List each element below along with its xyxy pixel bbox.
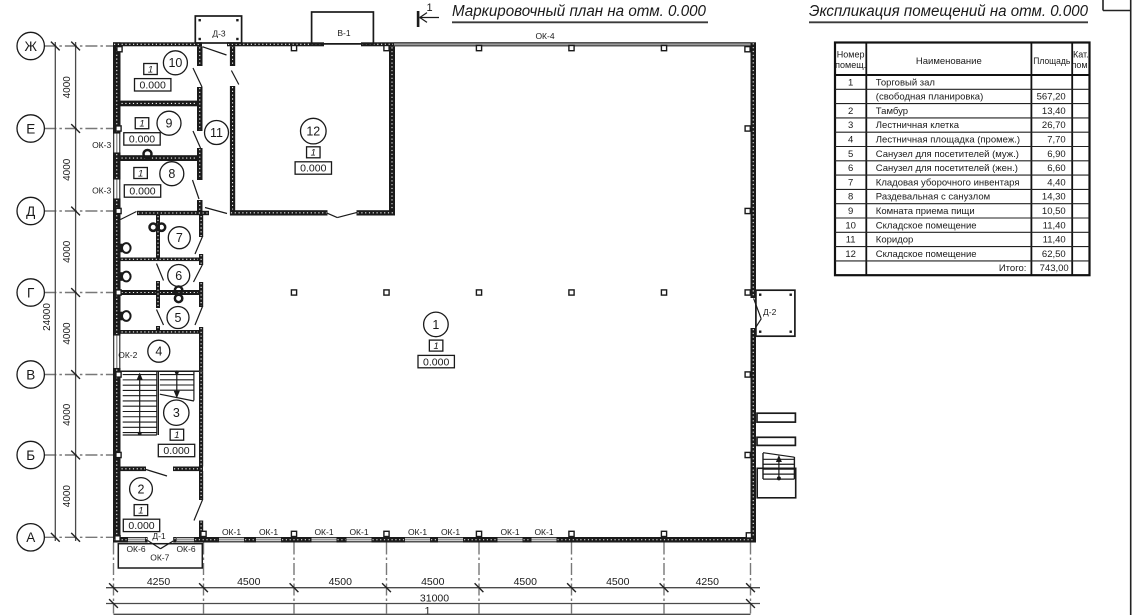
svg-text:1: 1 <box>426 2 432 14</box>
svg-text:10: 10 <box>168 56 182 70</box>
svg-text:В: В <box>26 367 35 382</box>
svg-text:14,30: 14,30 <box>1042 192 1066 203</box>
svg-text:Лестничная клетка: Лестничная клетка <box>876 120 960 131</box>
svg-text:0.000: 0.000 <box>140 80 166 92</box>
svg-text:1: 1 <box>424 606 430 615</box>
svg-text:12: 12 <box>306 125 320 139</box>
svg-text:А: А <box>26 530 35 545</box>
svg-text:4500: 4500 <box>237 576 261 588</box>
svg-text:ОК-2: ОК-2 <box>118 350 137 360</box>
svg-text:0.000: 0.000 <box>163 445 189 457</box>
svg-text:0.000: 0.000 <box>423 356 449 368</box>
svg-text:7: 7 <box>848 177 853 188</box>
svg-text:Торговый зал: Торговый зал <box>876 77 935 88</box>
svg-text:0.000: 0.000 <box>300 163 326 175</box>
svg-text:743,00: 743,00 <box>1040 263 1069 274</box>
svg-text:1: 1 <box>148 64 153 75</box>
svg-text:Раздевальная с санузлом: Раздевальная с санузлом <box>876 192 990 203</box>
svg-text:1: 1 <box>311 148 316 159</box>
svg-text:Итого:: Итого: <box>999 263 1027 274</box>
svg-text:6: 6 <box>175 269 182 283</box>
svg-text:0.000: 0.000 <box>129 186 155 198</box>
svg-text:Санузел для посетителей (муж.): Санузел для посетителей (муж.) <box>876 149 1019 160</box>
svg-text:ОК-3: ОК-3 <box>92 185 111 195</box>
svg-text:4500: 4500 <box>421 576 445 588</box>
svg-text:4000: 4000 <box>62 322 73 345</box>
svg-text:10: 10 <box>845 220 856 231</box>
svg-text:Номер: Номер <box>837 50 865 60</box>
svg-text:ОК-1: ОК-1 <box>408 527 427 537</box>
svg-text:3: 3 <box>173 406 180 420</box>
svg-text:Маркировочный план на отм. 0.0: Маркировочный план на отм. 0.000 <box>452 3 706 20</box>
svg-text:6: 6 <box>848 163 853 174</box>
svg-text:ОК-6: ОК-6 <box>126 544 145 554</box>
svg-text:Кладовая уборочного инвентаря: Кладовая уборочного инвентаря <box>876 177 1020 188</box>
svg-text:2: 2 <box>138 482 145 496</box>
svg-text:ОК-3: ОК-3 <box>92 140 111 150</box>
svg-text:Наименование: Наименование <box>916 56 982 67</box>
svg-text:4000: 4000 <box>62 403 73 426</box>
svg-text:3: 3 <box>848 120 853 131</box>
svg-text:1: 1 <box>138 506 143 517</box>
svg-text:1: 1 <box>138 168 143 179</box>
svg-text:Е: Е <box>26 121 35 136</box>
svg-text:8: 8 <box>168 167 175 181</box>
svg-text:11,40: 11,40 <box>1043 220 1066 231</box>
svg-text:Площадь: Площадь <box>1033 56 1070 67</box>
svg-text:Д-2: Д-2 <box>763 307 777 317</box>
svg-text:7,70: 7,70 <box>1047 135 1066 146</box>
svg-text:Д: Д <box>26 204 35 219</box>
svg-text:Складское помещение: Складское помещение <box>876 249 977 260</box>
svg-text:4500: 4500 <box>329 576 353 588</box>
svg-text:Экспликация помещений на отм.: Экспликация помещений на отм. 0.000 <box>809 3 1088 20</box>
svg-text:4000: 4000 <box>62 76 73 99</box>
svg-text:567,20: 567,20 <box>1037 92 1066 103</box>
svg-text:ОК-1: ОК-1 <box>314 527 333 537</box>
svg-text:6,90: 6,90 <box>1047 149 1066 160</box>
svg-text:ОК-4: ОК-4 <box>535 31 554 41</box>
svg-text:5: 5 <box>848 149 853 160</box>
svg-text:26,70: 26,70 <box>1042 120 1066 131</box>
svg-text:ОК-1: ОК-1 <box>222 527 241 537</box>
svg-text:1: 1 <box>848 77 853 88</box>
svg-text:ОК-1: ОК-1 <box>441 527 460 537</box>
svg-text:Ж: Ж <box>24 39 37 54</box>
svg-text:Кат.: Кат. <box>1073 50 1089 60</box>
svg-text:6,60: 6,60 <box>1047 163 1066 174</box>
svg-text:Коридор: Коридор <box>876 235 914 246</box>
svg-text:Д-3: Д-3 <box>212 28 226 38</box>
svg-text:24000: 24000 <box>42 303 53 331</box>
svg-text:9: 9 <box>166 117 173 131</box>
svg-text:0.000: 0.000 <box>128 520 154 532</box>
svg-text:62,50: 62,50 <box>1042 249 1066 260</box>
svg-text:1: 1 <box>174 430 179 441</box>
svg-text:4250: 4250 <box>696 576 720 588</box>
svg-text:4,40: 4,40 <box>1047 177 1066 188</box>
svg-text:ОК-1: ОК-1 <box>259 527 278 537</box>
svg-text:12: 12 <box>845 249 856 260</box>
svg-text:0.000: 0.000 <box>129 134 155 146</box>
svg-text:помещ.: помещ. <box>835 60 866 70</box>
svg-text:4500: 4500 <box>514 576 538 588</box>
svg-text:Д-1: Д-1 <box>152 531 166 541</box>
svg-text:пом.: пом. <box>1072 60 1091 70</box>
svg-text:11: 11 <box>210 126 223 140</box>
svg-text:В-1: В-1 <box>337 28 351 38</box>
svg-text:1: 1 <box>139 119 144 130</box>
svg-text:1: 1 <box>433 341 438 352</box>
svg-text:4000: 4000 <box>62 240 73 263</box>
svg-text:11,40: 11,40 <box>1043 235 1066 246</box>
svg-text:ОК-7: ОК-7 <box>150 552 169 562</box>
svg-text:4000: 4000 <box>62 158 73 181</box>
svg-text:ОК-1: ОК-1 <box>534 527 553 537</box>
svg-text:2: 2 <box>848 106 853 117</box>
svg-text:Санузел для посетителей (жен.): Санузел для посетителей (жен.) <box>876 163 1018 174</box>
svg-text:4: 4 <box>848 135 853 146</box>
svg-text:5: 5 <box>175 311 182 325</box>
svg-text:1: 1 <box>432 318 439 332</box>
svg-text:4: 4 <box>155 345 162 359</box>
svg-text:Тамбур: Тамбур <box>876 106 908 117</box>
svg-text:ОК-1: ОК-1 <box>500 527 519 537</box>
svg-text:9: 9 <box>848 206 853 217</box>
svg-text:11: 11 <box>846 235 856 246</box>
svg-text:7: 7 <box>176 231 183 245</box>
svg-text:4500: 4500 <box>606 576 630 588</box>
svg-text:Комната приема пищи: Комната приема пищи <box>876 206 975 217</box>
svg-text:ОК-1: ОК-1 <box>349 527 368 537</box>
svg-text:8: 8 <box>848 192 853 203</box>
svg-text:Г: Г <box>27 285 35 300</box>
svg-text:4000: 4000 <box>62 485 73 508</box>
svg-text:10,50: 10,50 <box>1042 206 1066 217</box>
svg-text:4250: 4250 <box>147 576 171 588</box>
svg-text:Лестничная площадка (промеж.): Лестничная площадка (промеж.) <box>876 135 1020 146</box>
svg-text:Складское помещение: Складское помещение <box>876 220 977 231</box>
svg-text:Б: Б <box>26 448 35 463</box>
svg-text:(свободная планировка): (свободная планировка) <box>876 92 983 103</box>
svg-text:ОК-6: ОК-6 <box>176 544 195 554</box>
svg-text:31000: 31000 <box>420 592 449 604</box>
svg-text:13,40: 13,40 <box>1042 106 1066 117</box>
